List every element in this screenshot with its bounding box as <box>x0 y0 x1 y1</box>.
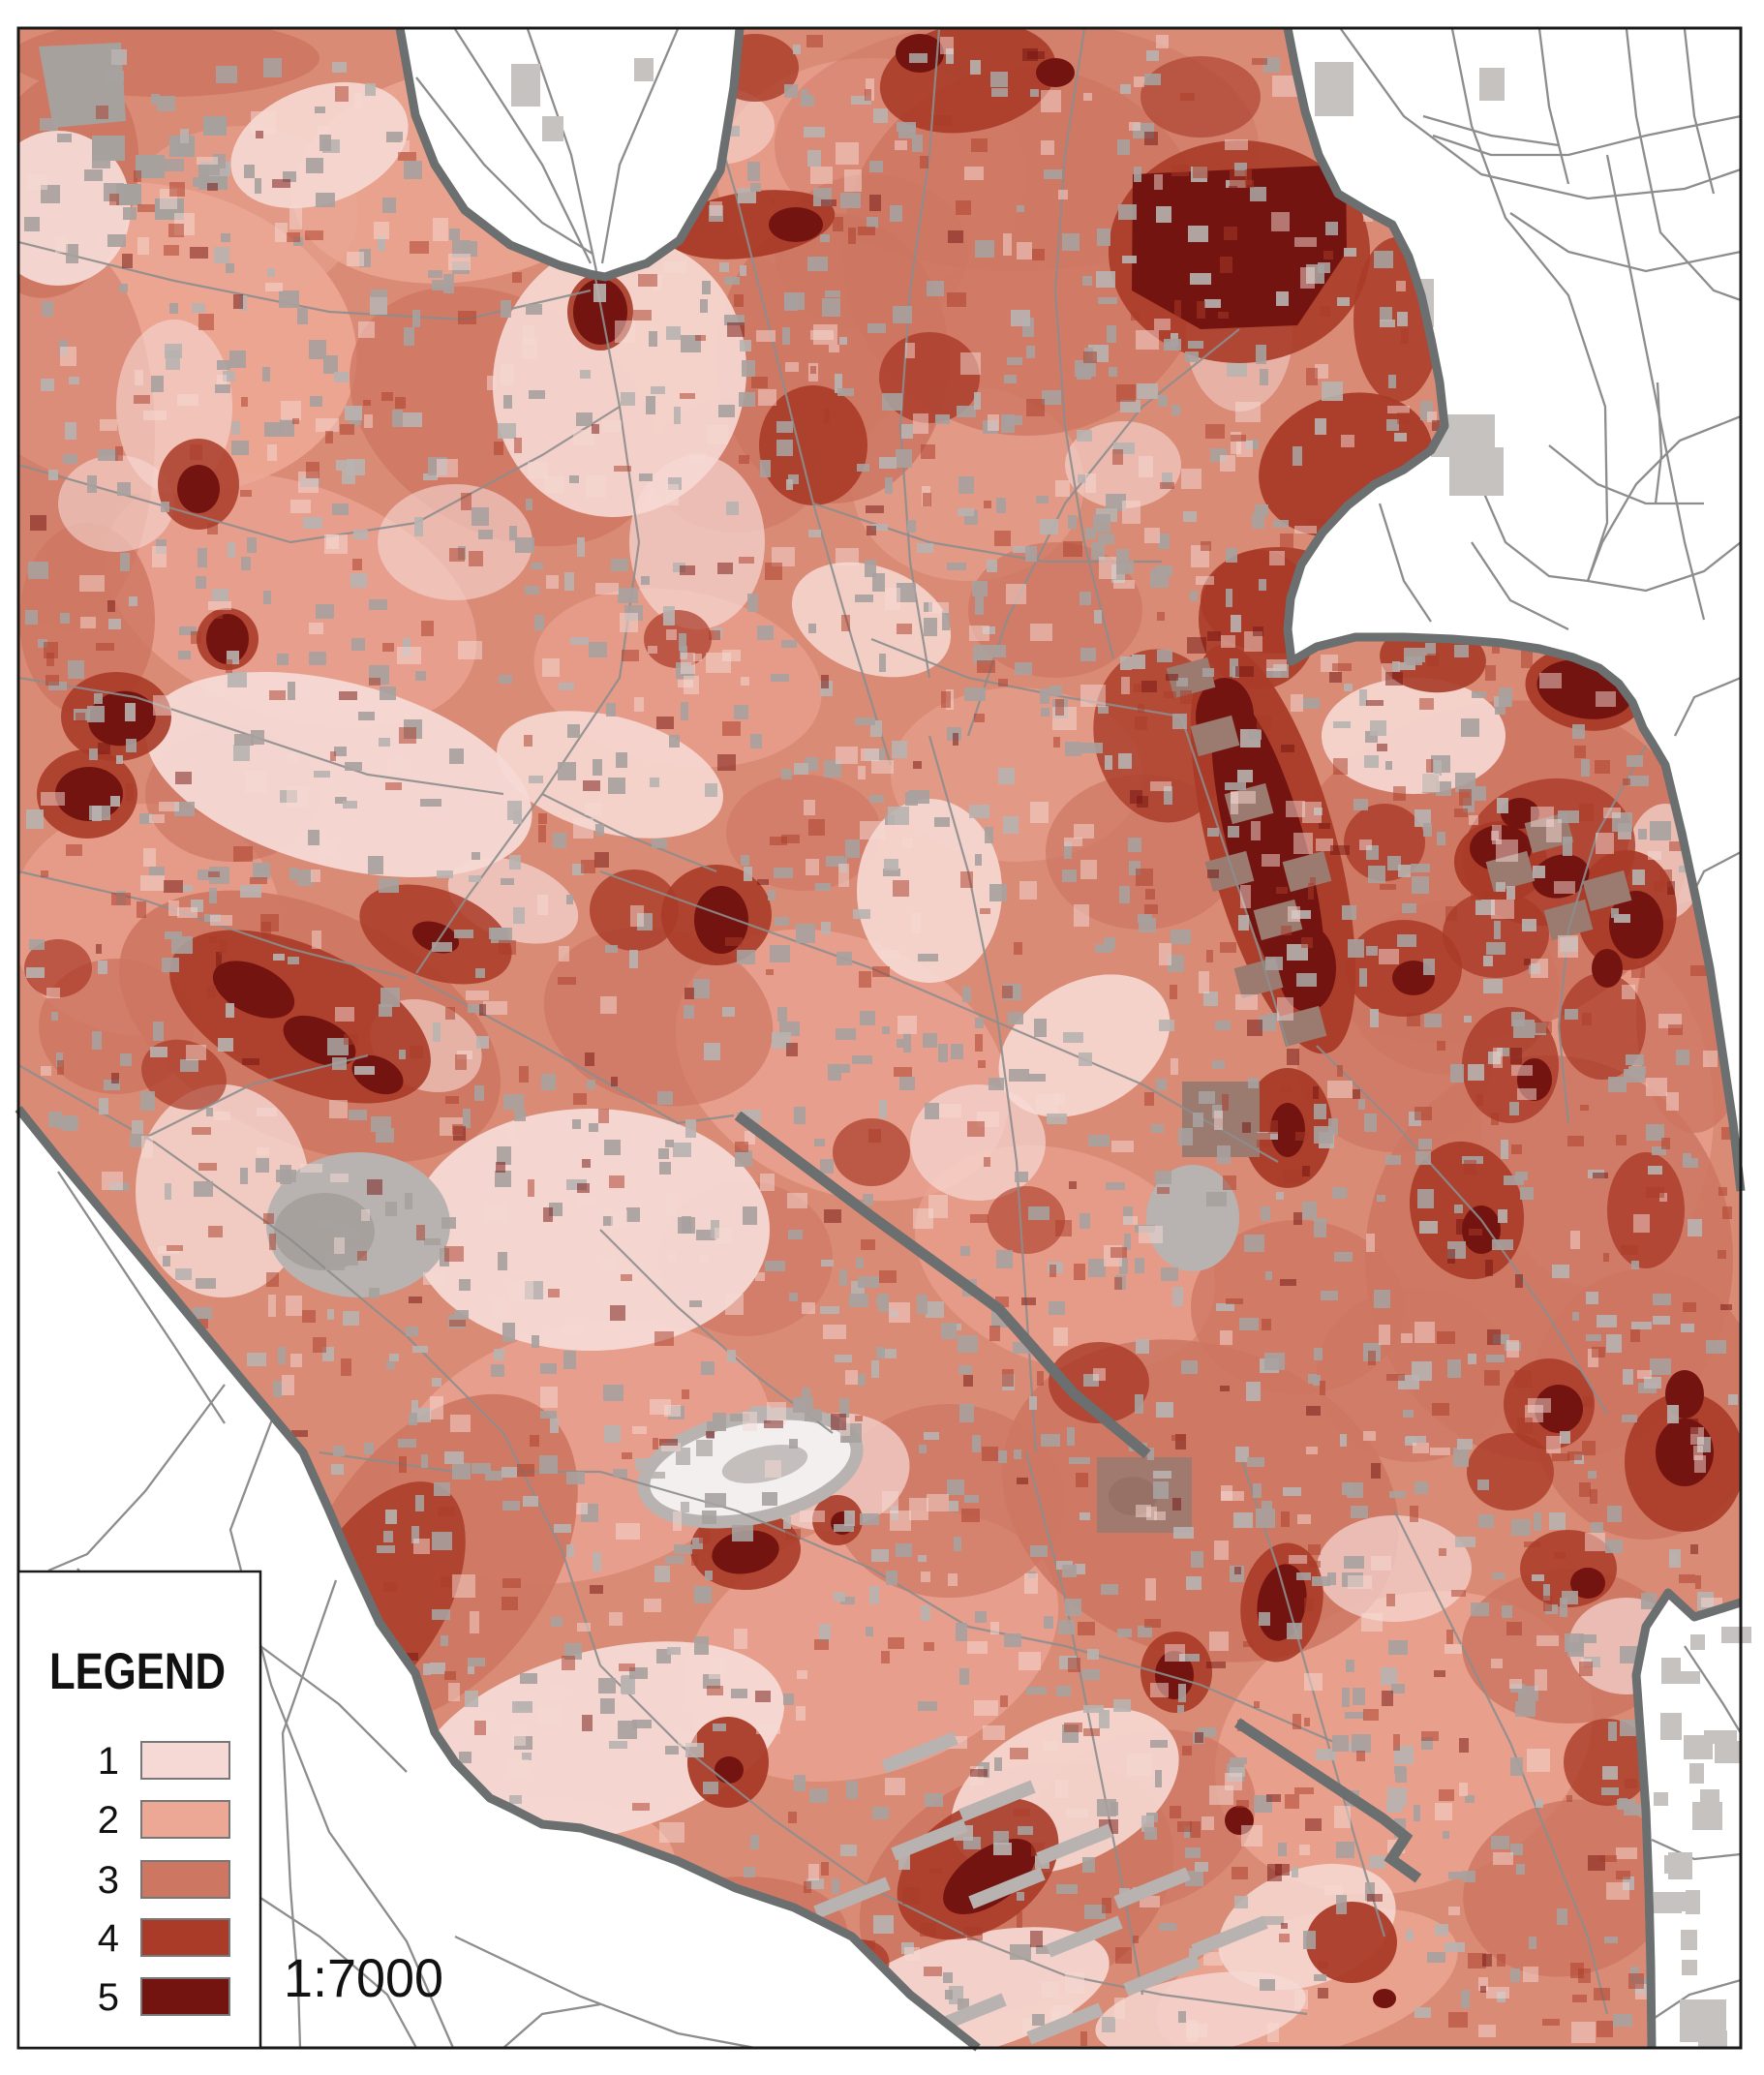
svg-text:5: 5 <box>98 1976 119 2019</box>
svg-text:4: 4 <box>98 1917 119 1960</box>
svg-text:LEGEND: LEGEND <box>49 1643 226 1700</box>
svg-text:3: 3 <box>98 1859 119 1902</box>
svg-text:1:7000: 1:7000 <box>284 1947 443 2008</box>
svg-text:2: 2 <box>98 1799 119 1842</box>
svg-text:1: 1 <box>98 1740 119 1783</box>
